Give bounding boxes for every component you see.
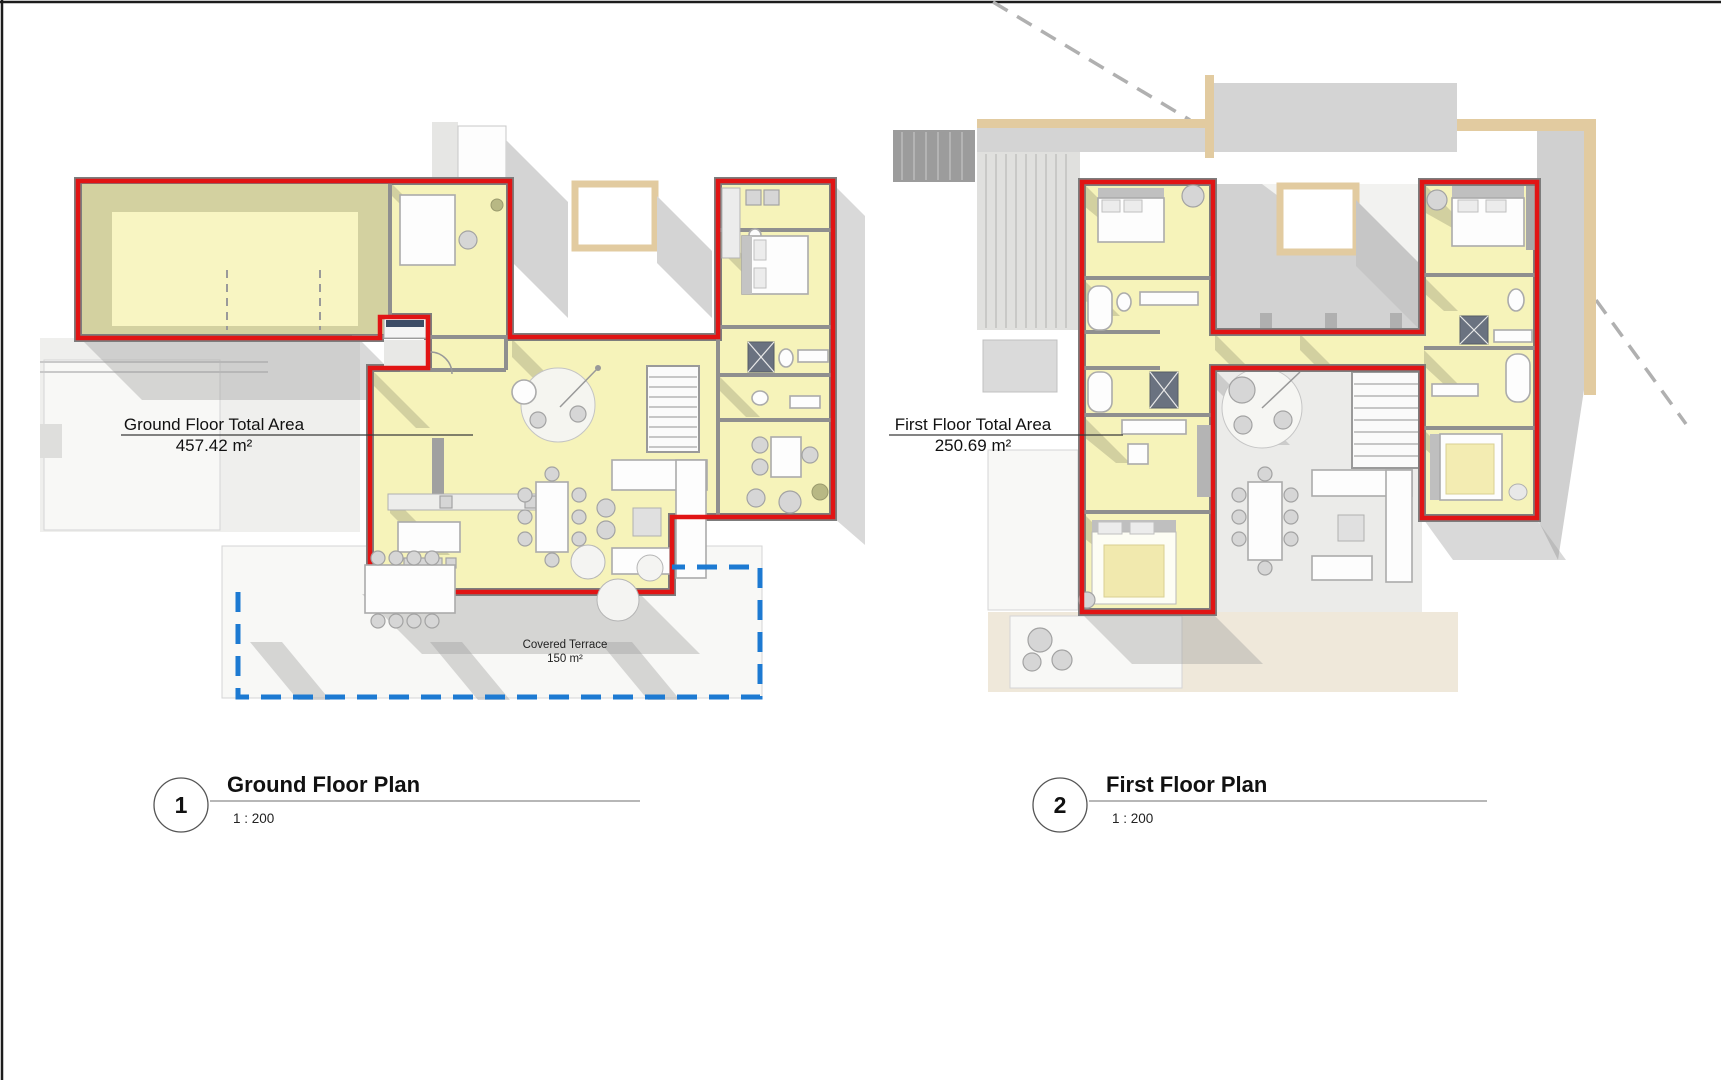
view-title: Ground Floor Plan bbox=[227, 772, 420, 797]
terrace-label: Covered Terrace bbox=[523, 639, 608, 651]
plant bbox=[1182, 185, 1204, 207]
bathtub bbox=[1088, 286, 1112, 330]
view-number-2: 2 bbox=[1054, 792, 1067, 818]
property-dashed-line-2 bbox=[1596, 300, 1686, 424]
view-number: 1 bbox=[175, 792, 188, 818]
staircase-ff bbox=[1352, 372, 1420, 468]
terrace-area-value: 150 m² bbox=[547, 653, 583, 665]
bathtub-2 bbox=[1088, 372, 1112, 412]
area-value: 457.42 m² bbox=[176, 436, 253, 455]
view-title-2: First Floor Plan bbox=[1106, 772, 1267, 797]
lounge-nook-ff bbox=[1222, 368, 1302, 448]
bedroom-2 bbox=[1079, 520, 1176, 608]
view-scale: 1 : 200 bbox=[233, 811, 274, 826]
plant-2 bbox=[1427, 190, 1447, 210]
floor-plans-canvas: Covered Terrace 150 m² Ground Floor Tota… bbox=[0, 0, 1721, 1080]
first-floor-view-title: 2 First Floor Plan 1 : 200 bbox=[1033, 772, 1487, 832]
view-scale-2: 1 : 200 bbox=[1112, 811, 1153, 826]
property-dashed-line bbox=[993, 2, 1190, 120]
kitchen-island bbox=[398, 522, 460, 552]
first-floor-plan: First Floor Total Area 250.69 m² 2 First… bbox=[889, 2, 1686, 832]
staircase bbox=[647, 366, 699, 452]
skylight-frame bbox=[575, 184, 655, 248]
area-label: Ground Floor Total Area bbox=[124, 415, 305, 434]
area-label-ff: First Floor Total Area bbox=[895, 415, 1052, 434]
ground-floor-view-title: 1 Ground Floor Plan 1 : 200 bbox=[154, 772, 640, 832]
drawing-sheet: Covered Terrace 150 m² Ground Floor Tota… bbox=[0, 0, 1721, 1080]
skylight-frame-ff bbox=[1280, 186, 1356, 252]
guest-bedroom bbox=[742, 236, 808, 294]
area-value-ff: 250.69 m² bbox=[935, 436, 1012, 455]
garage bbox=[82, 184, 388, 334]
bathtub-3 bbox=[1506, 354, 1530, 402]
ground-floor-plan: Covered Terrace 150 m² Ground Floor Tota… bbox=[40, 122, 865, 832]
